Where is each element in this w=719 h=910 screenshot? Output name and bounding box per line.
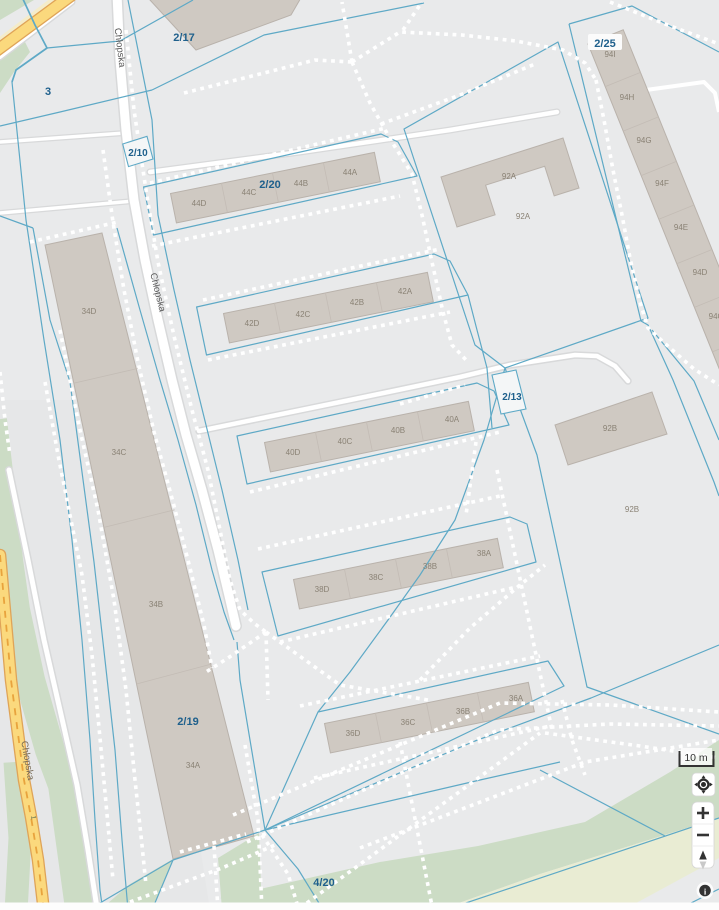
svg-text:44D: 44D bbox=[192, 199, 207, 208]
svg-text:38A: 38A bbox=[477, 549, 492, 558]
svg-text:92A: 92A bbox=[502, 172, 517, 181]
svg-text:94C: 94C bbox=[709, 312, 719, 321]
svg-text:42B: 42B bbox=[350, 298, 364, 307]
svg-text:2/17: 2/17 bbox=[173, 32, 194, 44]
svg-text:42A: 42A bbox=[398, 287, 413, 296]
svg-text:92A: 92A bbox=[516, 212, 531, 221]
svg-text:92B: 92B bbox=[625, 505, 639, 514]
svg-text:94I: 94I bbox=[604, 50, 615, 59]
svg-text:40B: 40B bbox=[391, 426, 405, 435]
svg-text:2/25: 2/25 bbox=[594, 38, 615, 50]
svg-text:36B: 36B bbox=[456, 707, 470, 716]
svg-text:42D: 42D bbox=[245, 319, 260, 328]
svg-text:94F: 94F bbox=[655, 179, 669, 188]
svg-text:40A: 40A bbox=[445, 415, 460, 424]
svg-text:36A: 36A bbox=[509, 694, 524, 703]
svg-text:2/13: 2/13 bbox=[502, 392, 522, 403]
svg-text:94H: 94H bbox=[620, 93, 635, 102]
svg-text:94D: 94D bbox=[693, 268, 708, 277]
svg-text:2/20: 2/20 bbox=[259, 179, 280, 191]
svg-text:10 m: 10 m bbox=[684, 752, 708, 764]
svg-text:4/20: 4/20 bbox=[313, 877, 334, 889]
svg-text:2/10: 2/10 bbox=[128, 148, 148, 159]
svg-text:42C: 42C bbox=[296, 310, 311, 319]
svg-text:94G: 94G bbox=[636, 136, 651, 145]
svg-text:44C: 44C bbox=[242, 188, 257, 197]
svg-text:94E: 94E bbox=[674, 223, 688, 232]
svg-text:34D: 34D bbox=[82, 307, 97, 316]
svg-text:44B: 44B bbox=[294, 179, 308, 188]
svg-text:38C: 38C bbox=[369, 573, 384, 582]
svg-text:40C: 40C bbox=[338, 437, 353, 446]
svg-text:38B: 38B bbox=[423, 562, 437, 571]
svg-text:38D: 38D bbox=[315, 585, 330, 594]
svg-text:34C: 34C bbox=[112, 448, 127, 457]
svg-text:44A: 44A bbox=[343, 168, 358, 177]
svg-text:36D: 36D bbox=[346, 729, 361, 738]
svg-text:34A: 34A bbox=[186, 761, 201, 770]
svg-text:92B: 92B bbox=[603, 424, 617, 433]
svg-text:34B: 34B bbox=[149, 600, 163, 609]
svg-text:40D: 40D bbox=[286, 448, 301, 457]
svg-text:36C: 36C bbox=[401, 718, 416, 727]
svg-text:3: 3 bbox=[45, 86, 51, 98]
svg-text:2/19: 2/19 bbox=[177, 716, 198, 728]
